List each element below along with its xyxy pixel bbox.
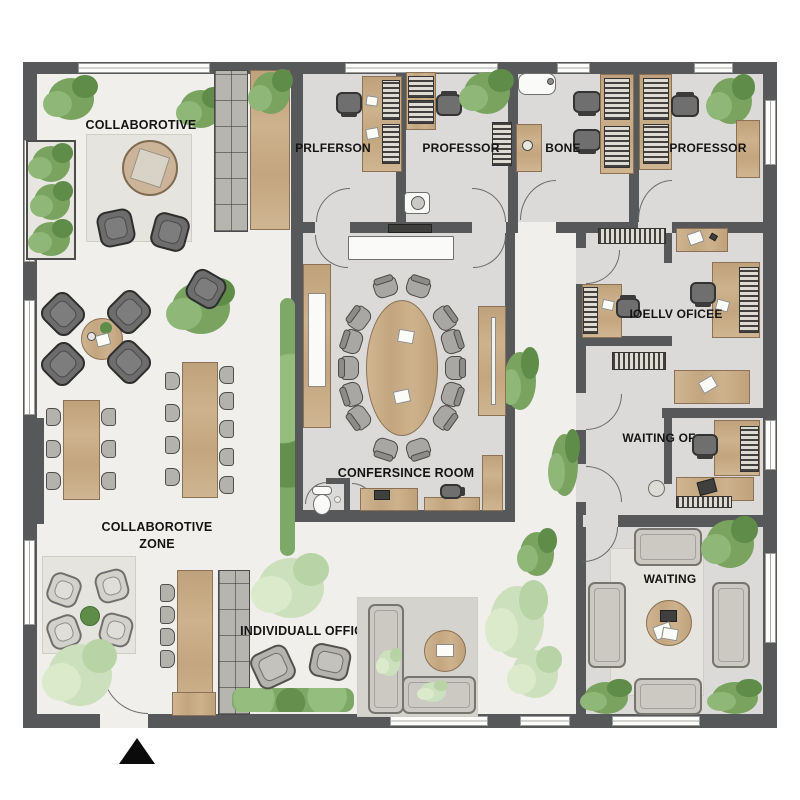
label-professor-top-right: PROFESSOR [669,141,746,155]
bookshelf-top [598,228,666,244]
window-top-4 [694,63,733,73]
plant-waiting-2 [584,682,628,714]
door-gap-waiting-room [583,515,618,527]
table-chair [101,408,116,426]
window-left-3 [24,540,35,625]
planter-plant-1 [32,146,70,182]
office-chair [436,94,462,116]
conference-chair [341,356,359,380]
bookshelf-mid [612,352,666,370]
sink-basin [411,196,425,210]
table-chair [165,468,180,486]
table-chair [219,448,234,466]
conference-sideboard-right [478,306,506,416]
entrance-arrow-icon [119,738,155,764]
entrance-bench [172,692,216,716]
table-chair [46,472,61,490]
door-gap-entrance [100,714,148,728]
laptop-desk-a [374,490,390,500]
wall-right-block-h2 [662,408,763,418]
window-top-1 [78,63,210,73]
planter-plant-2 [34,184,70,220]
window-left-2 [24,300,35,415]
conference-desk-b [424,497,480,511]
plant-waiting-3 [712,682,758,714]
label-individuall-office: INDIVIDUALL OFFICE [240,624,372,638]
plant-corridor-1 [504,352,536,410]
plant-professor-right [710,78,752,124]
plant-topleft-1 [48,78,94,120]
floor-drain [334,496,341,503]
window-right-2 [765,420,776,470]
office-chair [336,92,362,114]
plant-mid-2 [512,650,558,698]
table-chair [165,372,180,390]
window-right-3 [765,553,776,643]
leaf-deco-sofa [378,650,400,676]
desk-organizer [382,124,400,164]
plant-individual-office [258,558,324,618]
window-planter [26,140,76,260]
table-chair [219,476,234,494]
table-chair [46,408,61,426]
door-gap-bone [518,222,556,233]
table-chair [160,584,175,602]
label-collaborotive: COLLABOROTIVE [86,118,197,132]
desk-organizer [739,267,759,333]
leaf-deco-sofa-2 [420,682,446,702]
paper-on-conference-table [397,329,415,345]
plant-on-console [252,72,290,114]
desk-organizer [583,287,598,334]
label-collaborotive-zone-line1: COLLABOROTIVE [102,520,213,534]
conference-cabinet-left [303,264,331,428]
label-bone: BONE [545,141,580,155]
faucet [547,78,554,85]
label-professor-top-left: PROFESSOR [422,141,499,155]
door-gap-prlferson [315,222,350,233]
desk-organizer [643,78,669,120]
window-top-3 [557,63,590,73]
label-ioellv-oficee: IOELLV OFICEE [629,307,722,321]
conference-chair [445,356,463,380]
desk-organizer [604,126,630,168]
table-chair [101,440,116,458]
door-gap-waiting-of-1 [576,393,586,430]
desk-organizer [643,124,669,164]
floor-plan-canvas: COLLABOROTIVE COLLABOROTIVE ZONE INDIVID… [0,0,800,800]
office-chair [690,282,716,304]
table-chair [160,628,175,646]
sideboard-handle [491,317,496,405]
plant-pouf [80,606,100,626]
door-gap-right-block-top [576,248,586,284]
label-prlferson: PRLFERSON [295,141,371,155]
table-chair [165,436,180,454]
label-confersince-room: CONFERSINCE ROOM [338,466,475,480]
planter-plant-3 [32,222,70,256]
plant-waiting-1 [706,520,754,568]
office-chair [671,95,699,117]
desk-organizer [408,76,434,98]
vine-hedge-vertical [280,298,295,556]
pouf [648,480,665,497]
cabinet-door-panel [308,293,326,387]
label-collaborotive-zone-line2: ZONE [139,537,175,551]
hedge-bottom [232,688,354,712]
paper-on-desk [601,299,615,311]
conference-oval-table [366,300,438,436]
waiting-sofa-top [634,528,702,566]
remote-on-table [436,644,454,657]
table-chair [219,420,234,438]
table-chair [219,392,234,410]
cup-on-table [87,332,96,341]
plant-corridor-3 [520,532,554,576]
conference-cabinet-br [482,455,503,511]
wall-left-pillar [28,418,44,524]
desk-organizer [604,78,630,120]
plant-corridor-2 [551,434,578,496]
table-chair [219,366,234,384]
window-bottom-3 [612,716,700,726]
cup-on-desk [522,140,533,151]
paper-on-desk [365,127,380,140]
storage-shelf-unit [214,70,248,232]
label-waiting-of: WAITING OF [622,431,695,445]
desk-chair [440,484,462,499]
table-chair [165,404,180,422]
desk-organizer [740,426,759,472]
waiting-sofa-right [712,582,750,668]
window-right-1 [765,100,776,165]
wall-tv [388,224,432,233]
wall-right-block-stub-mid [664,408,672,484]
magazine-on-coffee-table [661,627,679,642]
work-table-small [63,400,100,500]
bookshelf-bottom [676,496,732,508]
desk-organizer [408,100,434,124]
table-chair [101,472,116,490]
whiteboard [348,236,454,260]
desk-organizer [382,80,400,120]
window-bottom-1 [390,716,488,726]
office-chair [692,434,718,456]
waiting-sofa-bottom [634,678,702,715]
door-gap-professor-left [472,222,506,233]
plant-professor-left [464,72,510,114]
waiting-sofa-left [588,582,626,668]
label-waiting: WAITING [644,572,697,586]
table-chair [46,440,61,458]
office-chair [573,91,601,113]
window-bottom-2 [520,716,570,726]
toilet-bowl [313,494,331,515]
plant-bottomleft [48,644,112,706]
table-chair [160,606,175,624]
plant-mid-1 [490,586,544,658]
table-chair [160,650,175,668]
paper-on-desk [365,95,378,107]
work-table-long [182,362,218,498]
